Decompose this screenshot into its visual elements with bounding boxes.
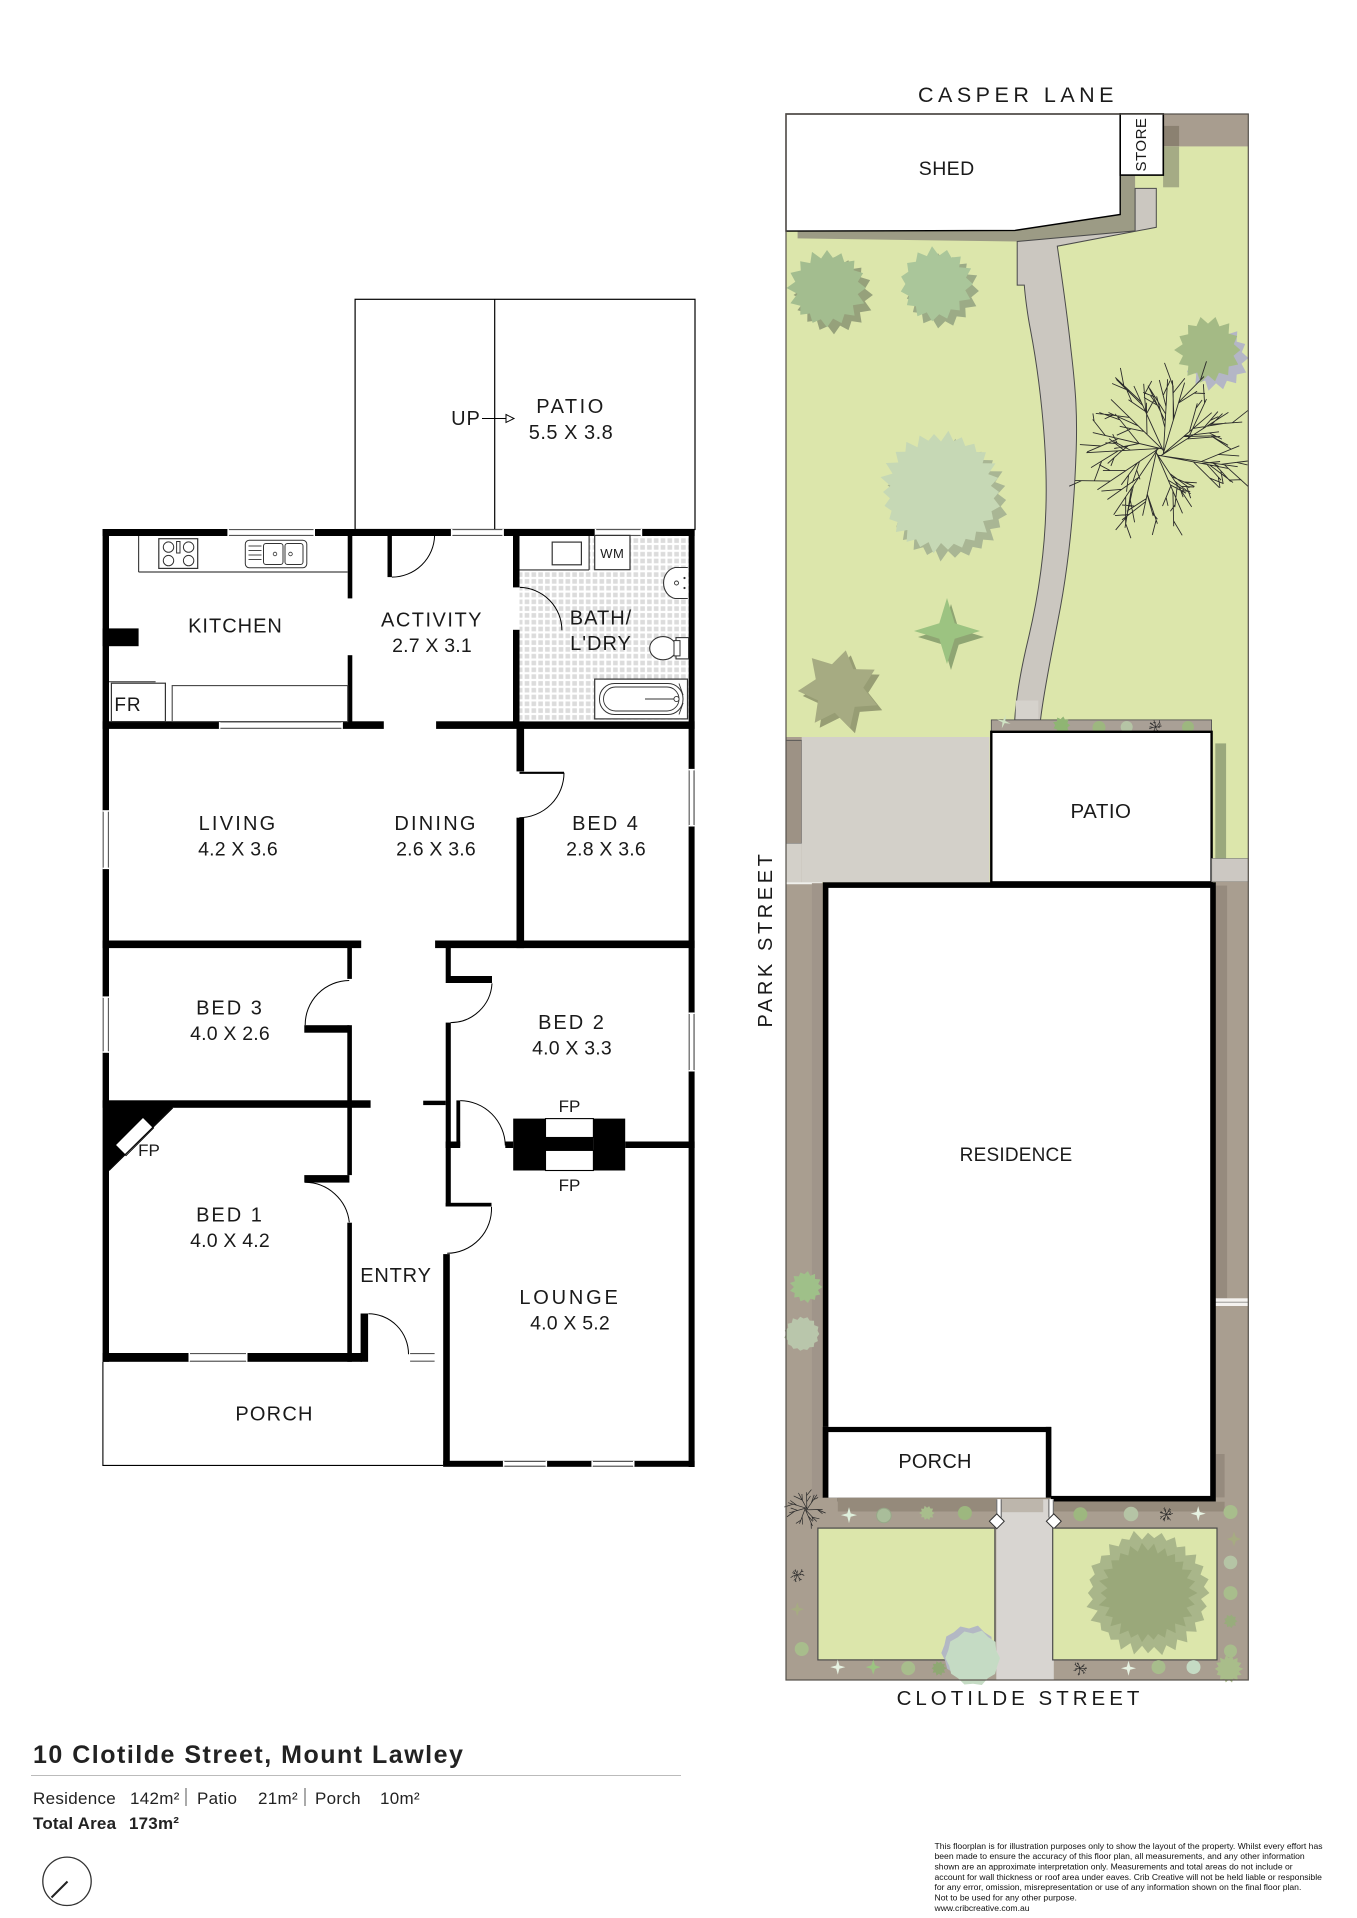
svg-text:PATIO: PATIO — [536, 396, 606, 418]
svg-text:173m²: 173m² — [129, 1814, 179, 1833]
svg-text:4.0 X 3.3: 4.0 X 3.3 — [532, 1038, 612, 1060]
svg-text:2.6 X 3.6: 2.6 X 3.6 — [396, 839, 476, 861]
svg-text:RESIDENCE: RESIDENCE — [960, 1145, 1073, 1166]
svg-text:ACTIVITY: ACTIVITY — [381, 610, 483, 632]
svg-text:ENTRY: ENTRY — [360, 1265, 431, 1287]
svg-text:10m²: 10m² — [380, 1789, 420, 1808]
svg-text:FP: FP — [559, 1176, 581, 1195]
svg-text:PORCH: PORCH — [235, 1404, 313, 1426]
svg-text:DINING: DINING — [394, 813, 477, 835]
svg-text:LIVING: LIVING — [199, 813, 278, 835]
svg-text:account for wall thickness or: account for wall thickness or roof area … — [935, 1872, 1323, 1882]
svg-text:www.cribcreative.com.au: www.cribcreative.com.au — [934, 1903, 1030, 1913]
svg-text:Residence: Residence — [33, 1789, 116, 1808]
svg-text:BED 4: BED 4 — [572, 813, 640, 835]
svg-text:10 Clotilde Street, Mount Lawl: 10 Clotilde Street, Mount Lawley — [33, 1741, 464, 1769]
svg-text:PARK STREET: PARK STREET — [755, 850, 777, 1027]
svg-text:LOUNGE: LOUNGE — [519, 1287, 620, 1309]
svg-text:WM: WM — [600, 546, 624, 561]
svg-text:FR: FR — [114, 695, 141, 716]
svg-text:2.7 X 3.1: 2.7 X 3.1 — [392, 635, 472, 657]
svg-text:5.5 X 3.8: 5.5 X 3.8 — [529, 422, 614, 444]
svg-text:Total Area: Total Area — [33, 1814, 117, 1833]
svg-text:KITCHEN: KITCHEN — [188, 616, 283, 638]
svg-text:UP: UP — [451, 408, 481, 430]
svg-text:BED 3: BED 3 — [196, 998, 264, 1020]
svg-text:4.0 X 2.6: 4.0 X 2.6 — [190, 1023, 270, 1045]
svg-text:CASPER LANE: CASPER LANE — [918, 83, 1118, 107]
svg-text:2.8 X 3.6: 2.8 X 3.6 — [566, 839, 646, 861]
svg-text:This floorplan is for illustra: This floorplan is for illustration purpo… — [935, 1841, 1323, 1851]
svg-text:shown are an approximate inter: shown are an approximate interpretation … — [935, 1862, 1293, 1872]
svg-text:FP: FP — [138, 1141, 160, 1160]
svg-text:Porch: Porch — [315, 1789, 361, 1808]
svg-text:SHED: SHED — [919, 158, 975, 180]
svg-text:BED 1: BED 1 — [196, 1205, 264, 1227]
svg-text:for any error, omission, misre: for any error, omission, misrepresentati… — [935, 1882, 1302, 1892]
svg-text:Patio: Patio — [197, 1789, 237, 1808]
svg-text:been made to ensure the accura: been made to ensure the accuracy of this… — [935, 1851, 1305, 1861]
svg-text:FP: FP — [559, 1097, 581, 1116]
svg-text:Not to be used for any other p: Not to be used for any other purpose. — [935, 1893, 1077, 1903]
svg-text:4.0 X 5.2: 4.0 X 5.2 — [530, 1313, 610, 1335]
svg-text:BED 2: BED 2 — [538, 1012, 606, 1034]
svg-text:STORE: STORE — [1133, 118, 1150, 172]
svg-text:4.2 X 3.6: 4.2 X 3.6 — [198, 839, 278, 861]
svg-text:L'DRY: L'DRY — [570, 633, 632, 655]
svg-text:PATIO: PATIO — [1071, 800, 1132, 823]
svg-text:142m²: 142m² — [130, 1789, 180, 1808]
svg-text:PORCH: PORCH — [898, 1451, 971, 1473]
svg-text:21m²: 21m² — [258, 1789, 298, 1808]
svg-text:4.0 X 4.2: 4.0 X 4.2 — [190, 1230, 270, 1252]
svg-text:CLOTILDE STREET: CLOTILDE STREET — [897, 1687, 1144, 1710]
svg-text:BATH/: BATH/ — [570, 608, 632, 630]
